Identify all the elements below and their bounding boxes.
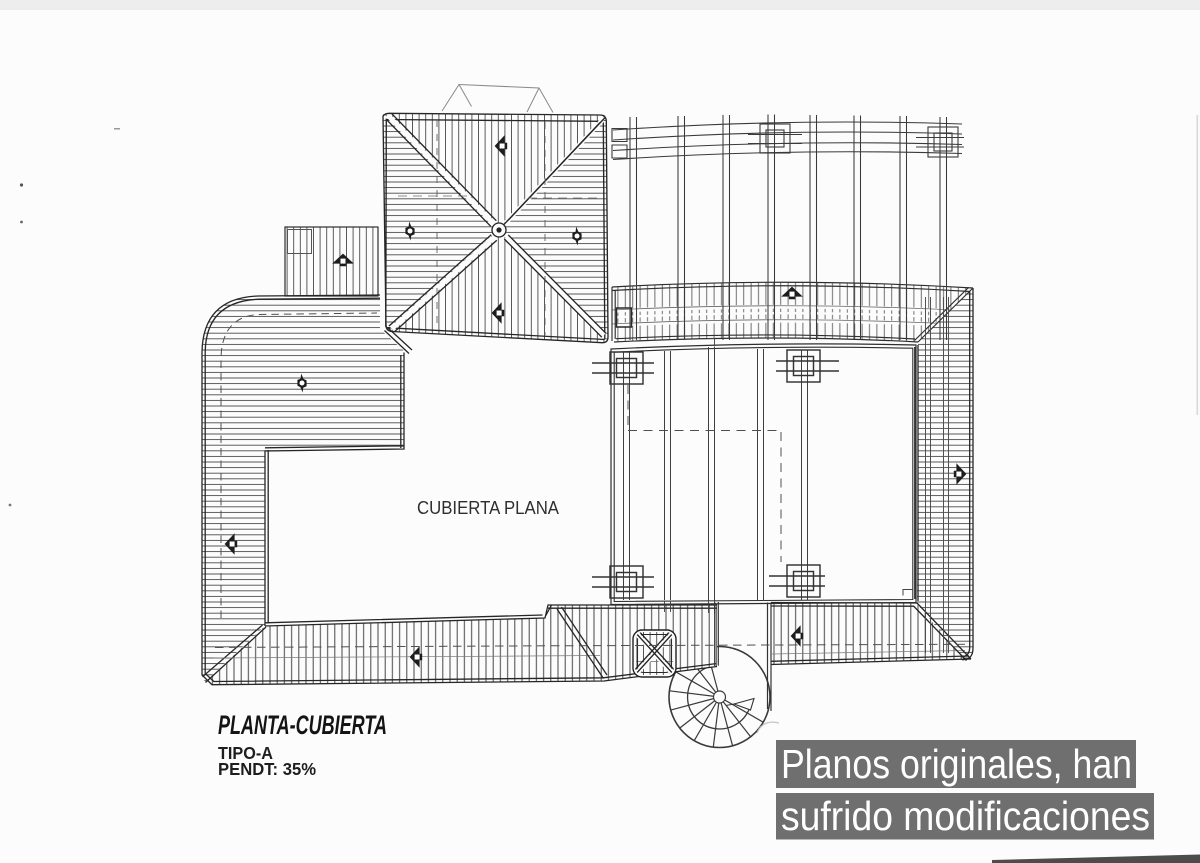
- svg-text:PENDT: 35%: PENDT: 35%: [218, 759, 316, 779]
- svg-text:sufrido modificaciones: sufrido modificaciones: [781, 793, 1150, 839]
- svg-text:PLANTA-CUBIERTA: PLANTA-CUBIERTA: [218, 710, 387, 740]
- svg-text:CUBIERTA PLANA: CUBIERTA PLANA: [417, 498, 559, 518]
- svg-text:Planos originales, han: Planos originales, han: [781, 741, 1132, 787]
